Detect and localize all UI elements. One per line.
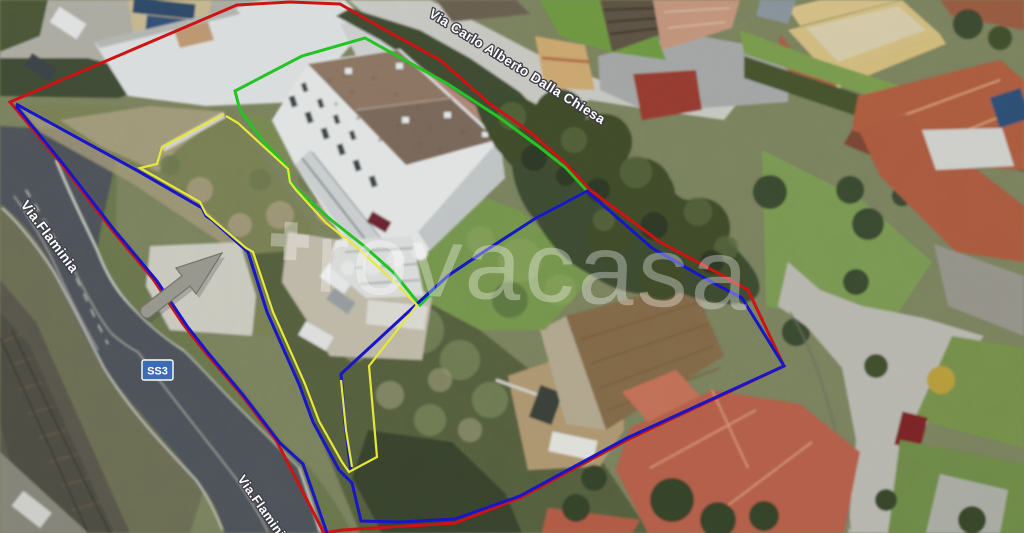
svg-text:SS3: SS3	[147, 366, 168, 378]
svg-text:rovacasa: rovacasa	[313, 201, 753, 332]
